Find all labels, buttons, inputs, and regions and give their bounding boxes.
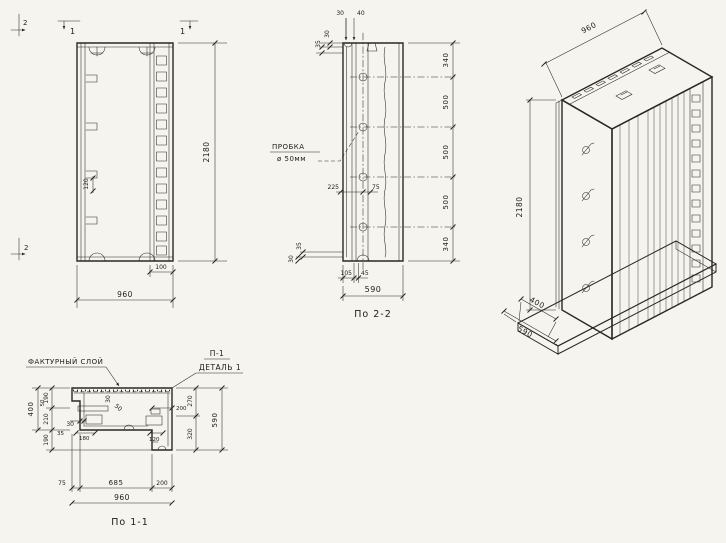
section-1-1-title: По 1-1 xyxy=(111,517,149,528)
dim-right-500a: 500 xyxy=(442,95,450,110)
dim-elevation-bracket: 120 xyxy=(83,178,90,190)
dim-left-top-35: 35 xyxy=(315,40,322,48)
dim-s1-270: 270 xyxy=(187,395,194,407)
dim-elevation-width: 960 xyxy=(117,290,133,299)
dim-elevation-height: 2180 xyxy=(202,141,211,162)
dim-right-500b: 500 xyxy=(442,145,450,160)
dim-s1-200b: 200 xyxy=(156,480,168,487)
elevation-view: 2180 100 960 120 1 1 2 2 xyxy=(11,14,227,308)
dim-right-340b: 340 xyxy=(442,237,450,252)
drawing-sheet: 2180 100 960 120 1 1 2 2 30 40 30 35 xyxy=(0,0,726,543)
section-1-1-callouts: ФАКТУРНЫЙ СЛОЙ П-1 ДЕТАЛЬ 1 xyxy=(26,349,243,388)
dim-225: 225 xyxy=(328,184,340,191)
section-2-2-dimensions: 30 40 30 35 35 30 225 75 105 45 590 340 … xyxy=(288,10,460,301)
axonometric-view: 960 2180 400 590 xyxy=(502,10,717,355)
section-1-1-dimensions: 400 190 210 190 50 30 35 180 30 50 200 1… xyxy=(27,386,228,506)
dim-right-500c: 500 xyxy=(442,195,450,210)
elevation-dimensions: 2180 100 960 120 xyxy=(75,41,228,309)
dim-75: 75 xyxy=(372,184,380,191)
dim-s1-200a: 200 xyxy=(176,406,187,412)
axon-plug-holes xyxy=(582,143,594,293)
dim-s1-320: 320 xyxy=(187,428,194,440)
dim-axon-height: 2180 xyxy=(515,196,524,217)
section-mark-2-bottom: 2 xyxy=(24,244,29,252)
plug-label-line2: ø 50мм xyxy=(277,155,306,163)
dim-left-bottom-30: 30 xyxy=(288,255,295,263)
dim-left-top-30: 30 xyxy=(324,30,331,38)
dim-axon-depth-base: 590 xyxy=(516,324,534,339)
dim-top-30: 30 xyxy=(336,10,344,17)
section-2-2-view: 30 40 30 35 35 30 225 75 105 45 590 340 … xyxy=(270,10,460,320)
dim-s1-960: 960 xyxy=(114,493,130,502)
detail-p1-label: П-1 xyxy=(210,349,225,358)
dim-section2-total: 590 xyxy=(365,285,382,294)
facing-layer-label: ФАКТУРНЫЙ СЛОЙ xyxy=(28,357,103,366)
section-2-2-title: По 2-2 xyxy=(354,309,392,320)
dim-s1-400: 400 xyxy=(27,402,35,417)
dim-s1-190b: 190 xyxy=(43,434,50,446)
dim-s1-30a: 30 xyxy=(66,421,74,428)
dim-s1-210: 210 xyxy=(43,413,50,425)
dim-s1-35: 35 xyxy=(57,431,64,437)
section-mark-2-top: 2 xyxy=(23,19,28,27)
section-marks: 1 1 2 2 xyxy=(11,14,198,260)
dim-elevation-rib: 100 xyxy=(155,264,167,271)
dim-right-340a: 340 xyxy=(442,53,450,68)
dim-s1-590: 590 xyxy=(211,413,219,428)
dim-top-40: 40 xyxy=(357,10,365,17)
axon-panel xyxy=(556,48,712,339)
dim-s1-75: 75 xyxy=(58,480,66,487)
section-1-1-view: 400 190 210 190 50 30 35 180 30 50 200 1… xyxy=(26,349,243,528)
section-mark-1-left: 1 xyxy=(70,27,76,36)
dim-s1-120: 120 xyxy=(149,437,160,443)
dim-left-bottom-35: 35 xyxy=(296,242,303,250)
dim-s1-180: 180 xyxy=(79,436,90,442)
panel-outline xyxy=(77,43,173,261)
dim-45: 45 xyxy=(361,270,369,277)
plug-callout: ПРОБКА ø 50мм xyxy=(270,131,359,163)
detail-1-label: ДЕТАЛЬ 1 xyxy=(199,363,241,372)
dim-105: 105 xyxy=(341,270,353,277)
plug-label-line1: ПРОБКА xyxy=(272,143,305,151)
dim-s1-30b: 30 xyxy=(105,395,112,403)
dim-axon-width: 960 xyxy=(580,20,598,35)
section-mark-1-right: 1 xyxy=(180,27,186,36)
panel-working-drawing: 2180 100 960 120 1 1 2 2 30 40 30 35 xyxy=(0,0,726,543)
dim-s1-685: 685 xyxy=(109,479,124,487)
section-2-2-body xyxy=(343,33,455,270)
dim-s1-50b: 50 xyxy=(113,403,123,413)
dim-s1-50a: 50 xyxy=(40,399,46,406)
